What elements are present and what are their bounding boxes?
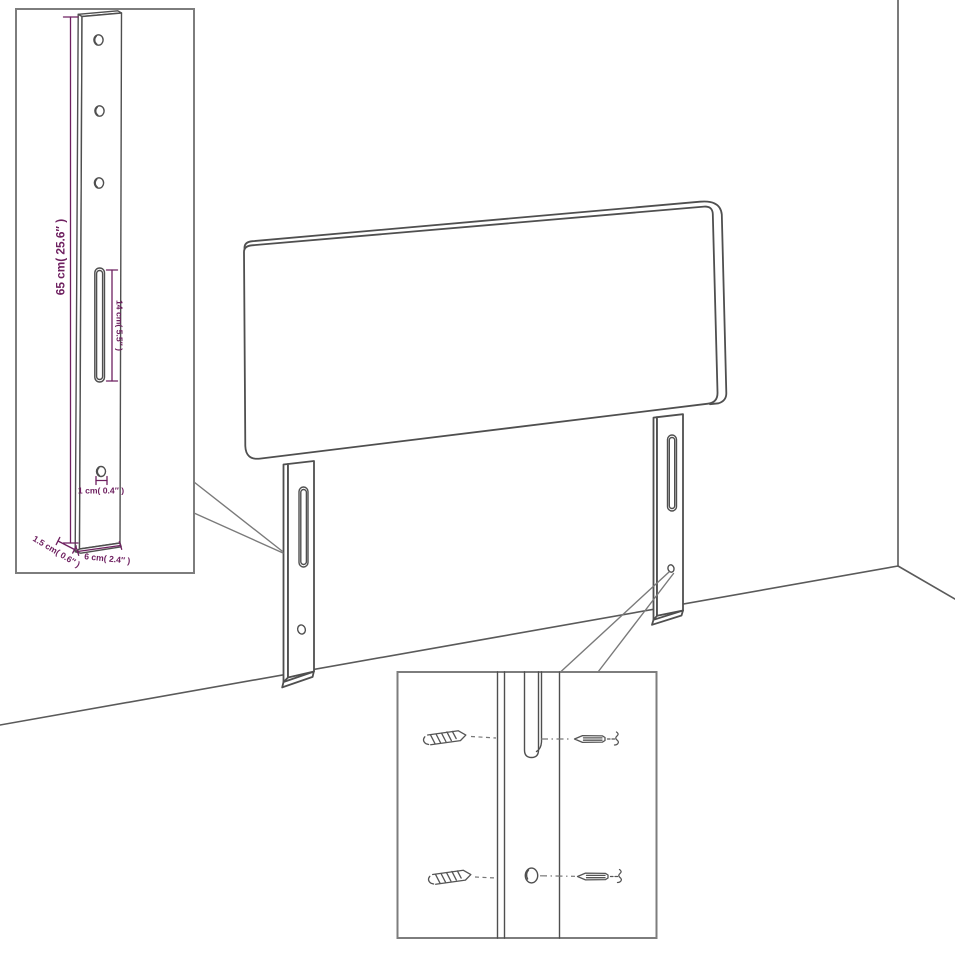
product-dimension-diagram: 65 cm( 25.6″ ) 14 cm( 5.5″ ) 1 cm( 0.4″ …: [0, 0, 955, 955]
leg-detail-drawing: [75, 11, 121, 553]
dimension-hole-label: 1 cm( 0.4″ ): [78, 486, 124, 496]
callout-lines: [194, 482, 674, 672]
callout-line-hole-2: [598, 574, 674, 673]
headboard-right-leg: [652, 414, 683, 625]
diagram-canvas: 65 cm( 25.6″ ) 14 cm( 5.5″ ) 1 cm( 0.4″ …: [0, 0, 955, 955]
mounting-detail-inset-frame: [398, 672, 657, 938]
mounting-detail-inset: [398, 672, 657, 938]
callout-line-slot-1: [194, 482, 282, 551]
dimension-height-label: 65 cm( 25.6″ ): [54, 219, 68, 296]
callout-line-slot-2: [194, 513, 283, 553]
detail-leg-front-face: [80, 13, 122, 549]
headboard-left-leg: [282, 461, 314, 687]
dimension-slot-label: 14 cm( 5.5″ ): [115, 300, 125, 351]
headboard-front-face: [244, 207, 718, 459]
floor-line-right: [898, 566, 955, 599]
leg-detail-inset: 65 cm( 25.6″ ) 14 cm( 5.5″ ) 1 cm( 0.4″ …: [16, 9, 194, 573]
